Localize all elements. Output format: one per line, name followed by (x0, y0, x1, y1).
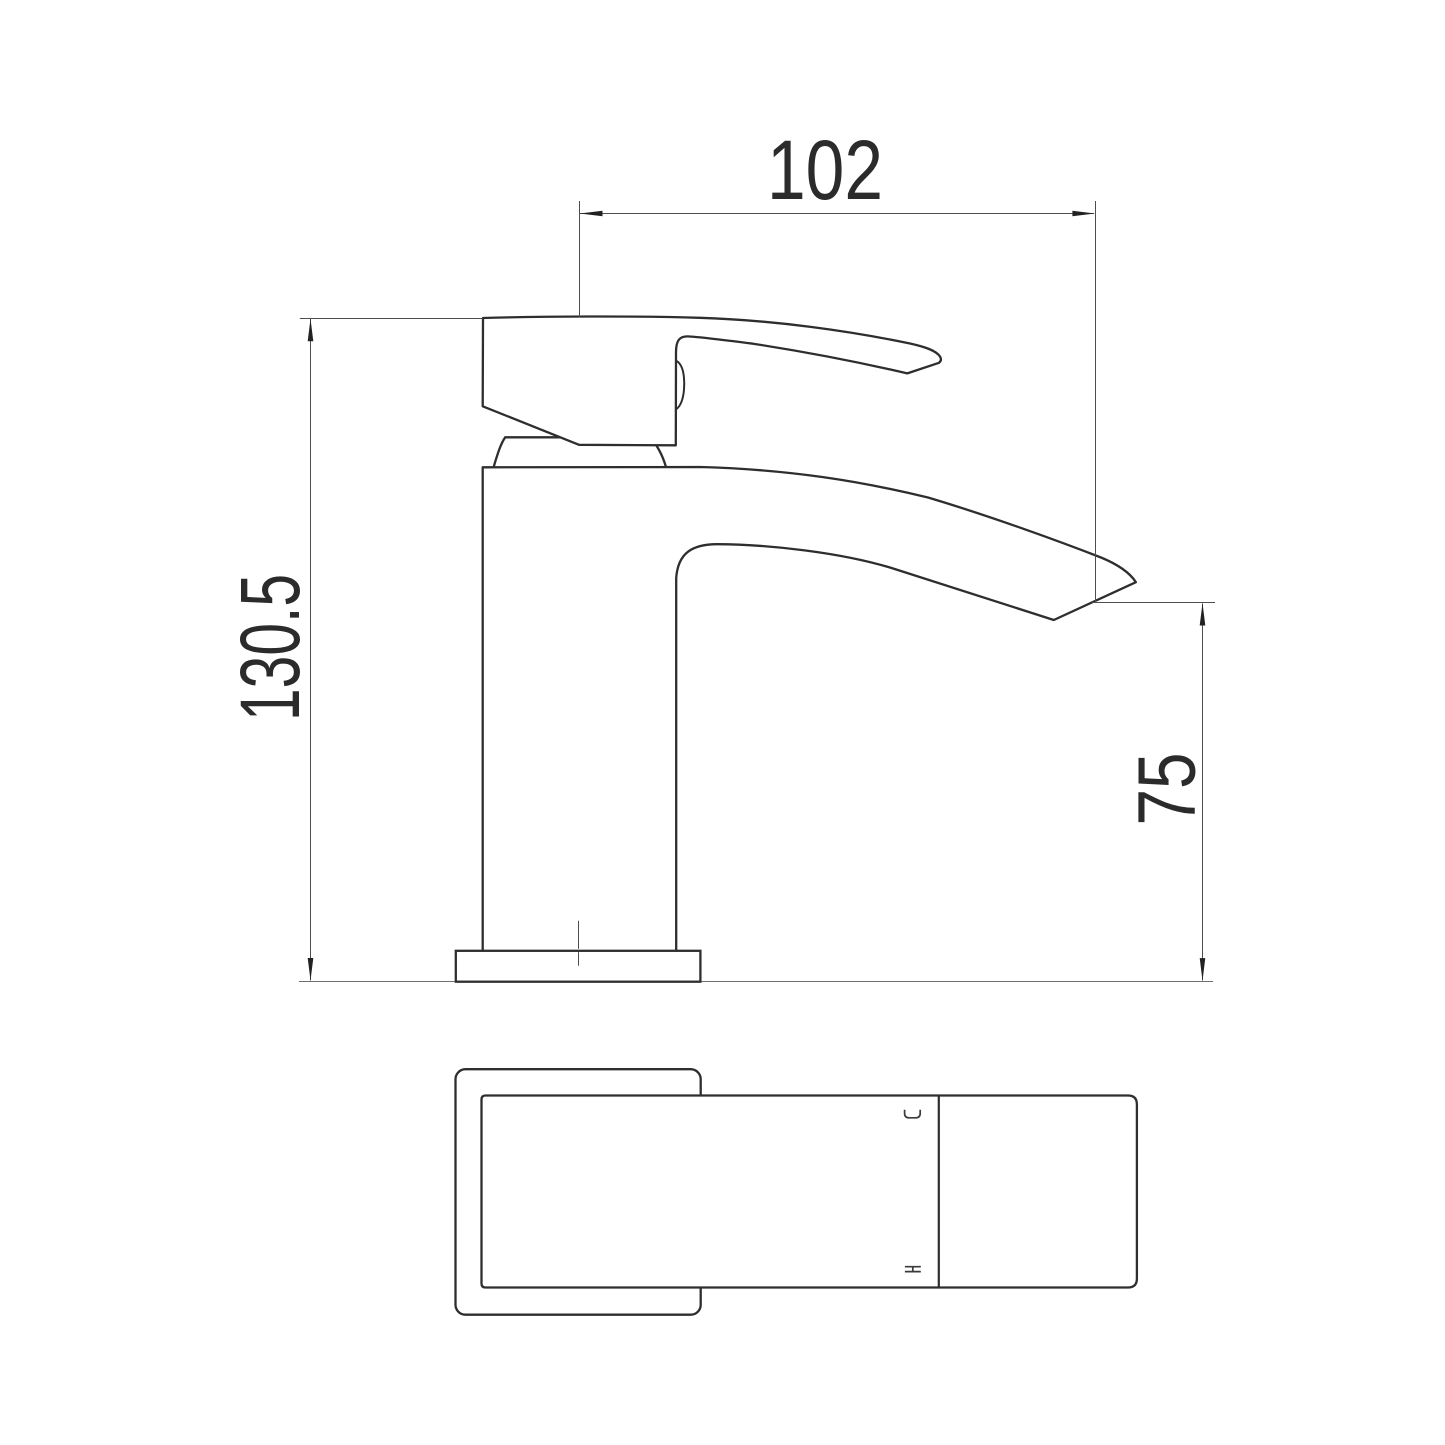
svg-text:102: 102 (767, 123, 883, 217)
svg-text:130.5: 130.5 (223, 574, 317, 721)
svg-text:75: 75 (1122, 753, 1213, 826)
